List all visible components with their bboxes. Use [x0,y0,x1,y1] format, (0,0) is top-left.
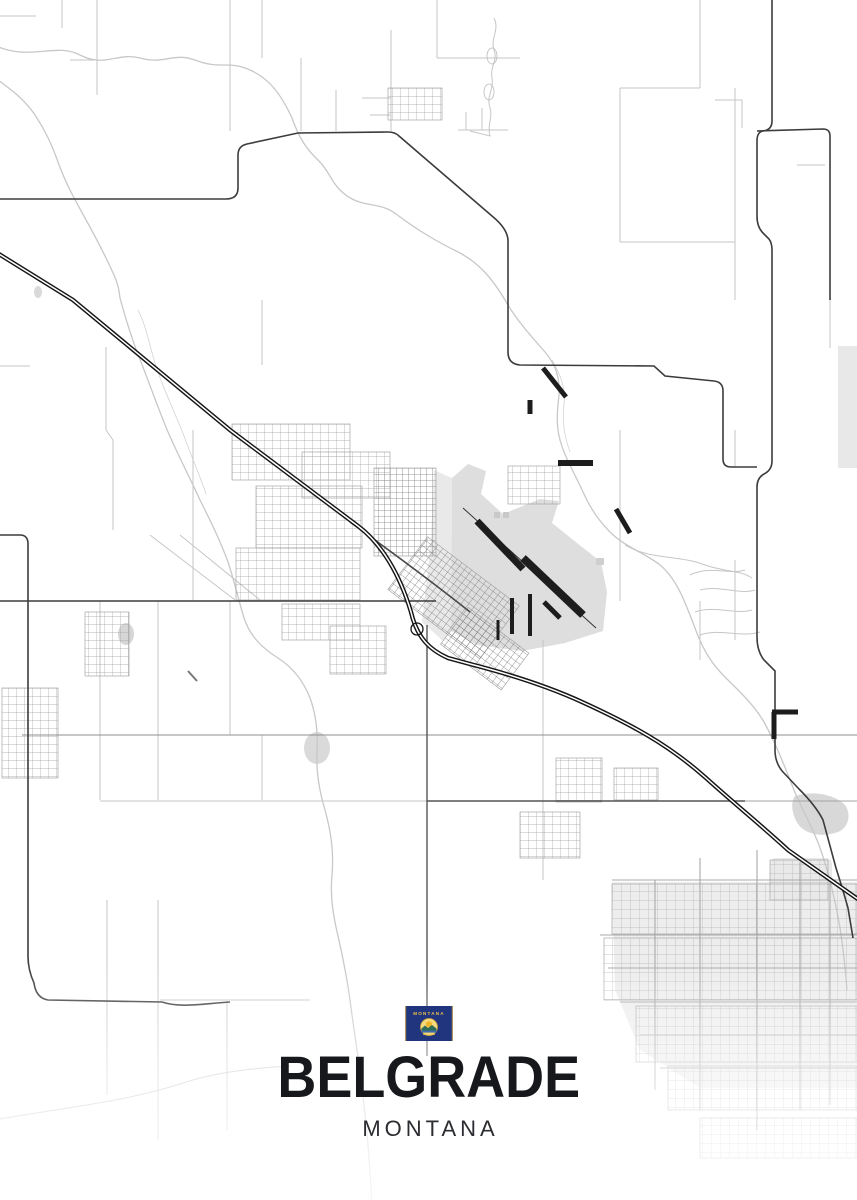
poster-title: BELGRADE [277,1049,580,1107]
montana-state-seal [420,1019,437,1036]
map-poster: MONTANA BELGRADE MONTANA [0,0,857,1200]
poster-subtitle: MONTANA [358,1116,498,1142]
montana-flag-icon: MONTANA [405,1006,453,1041]
flag-label: MONTANA [413,1011,445,1016]
poster-caption: MONTANA BELGRADE MONTANA [0,1006,857,1142]
